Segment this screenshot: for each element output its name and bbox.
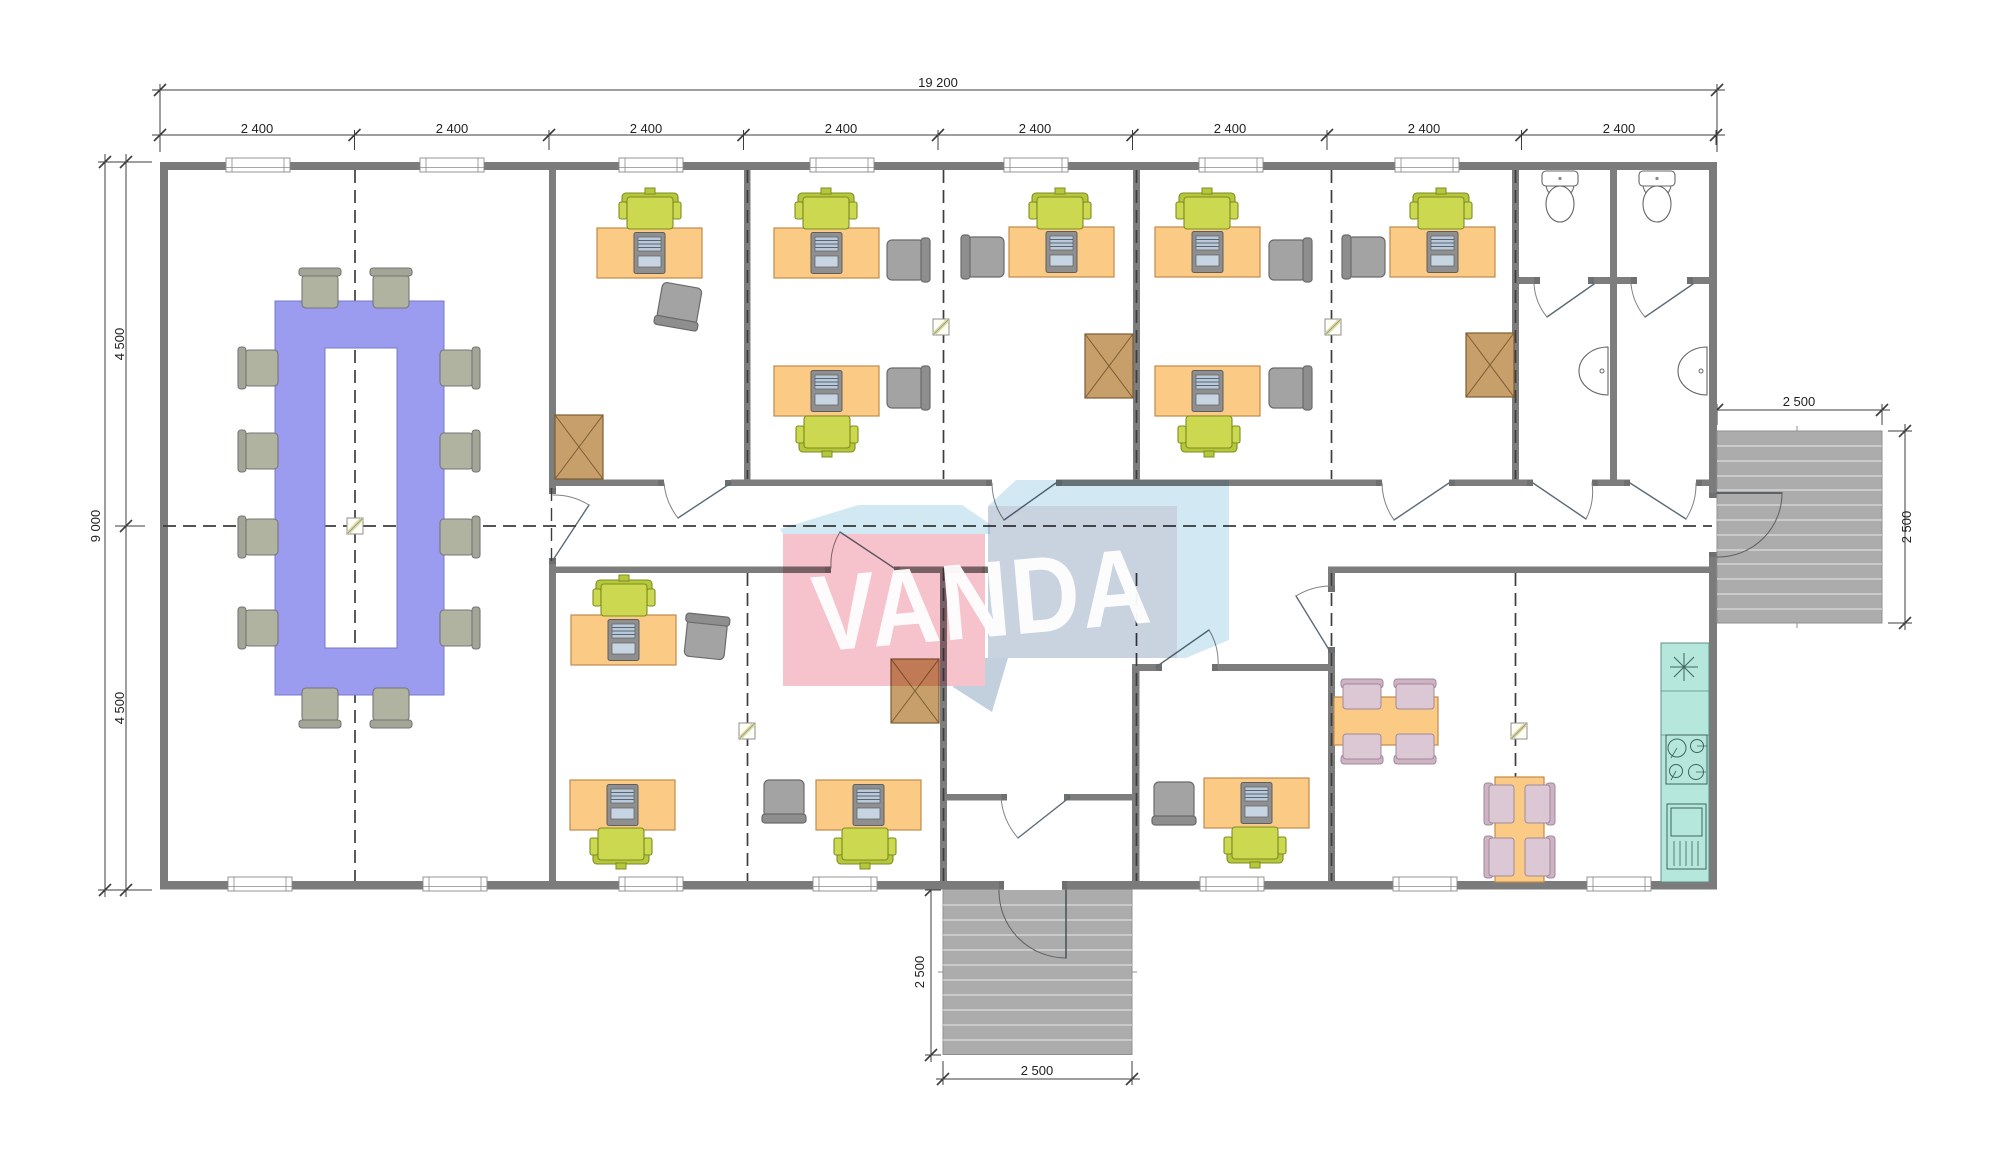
svg-text:2 500: 2 500 [1783, 394, 1816, 409]
svg-text:2 400: 2 400 [1214, 121, 1247, 136]
svg-text:2 500: 2 500 [912, 956, 927, 989]
svg-text:19 200: 19 200 [918, 75, 958, 90]
svg-text:2 400: 2 400 [1603, 121, 1636, 136]
svg-text:2 400: 2 400 [241, 121, 274, 136]
svg-text:2 400: 2 400 [825, 121, 858, 136]
svg-text:2 400: 2 400 [436, 121, 469, 136]
svg-text:4 500: 4 500 [112, 328, 127, 361]
svg-text:2 400: 2 400 [630, 121, 663, 136]
svg-text:2 500: 2 500 [1899, 511, 1914, 544]
svg-text:4 500: 4 500 [112, 692, 127, 725]
svg-text:2 400: 2 400 [1019, 121, 1052, 136]
svg-text:9 000: 9 000 [88, 510, 103, 543]
svg-text:2 400: 2 400 [1408, 121, 1441, 136]
svg-text:2 500: 2 500 [1021, 1063, 1054, 1078]
